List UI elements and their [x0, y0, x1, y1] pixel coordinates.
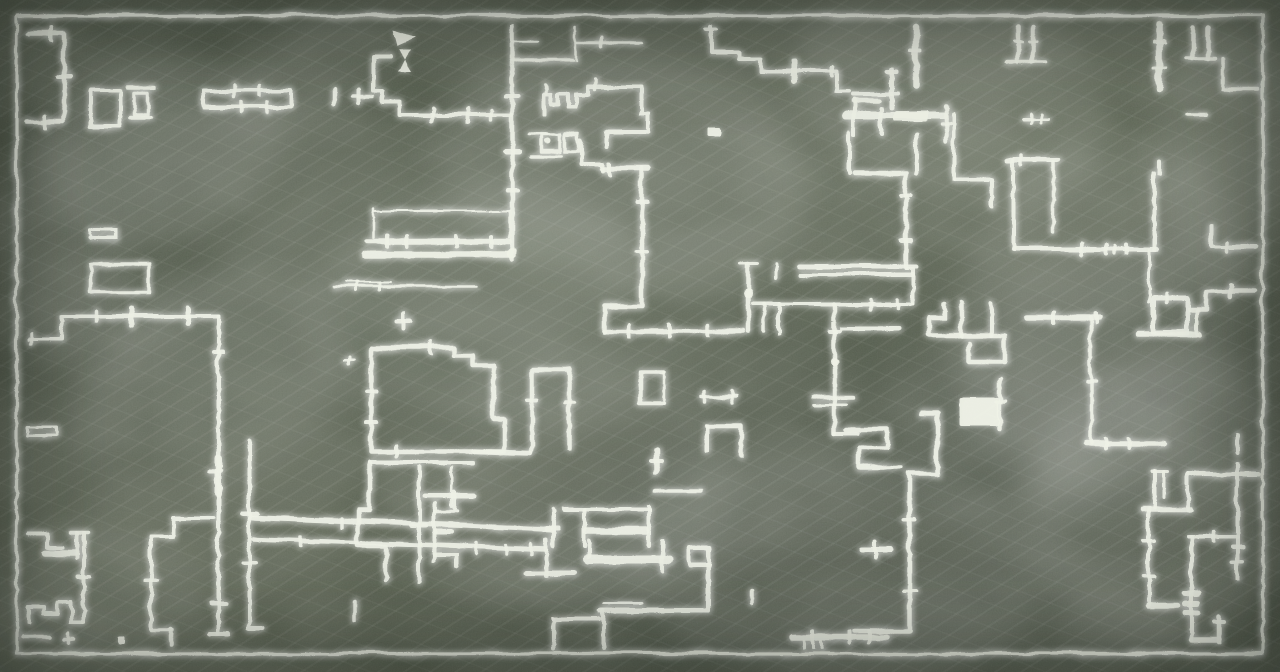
chalkboard: Green chalkboard with a hand-drawn white…	[0, 0, 1280, 672]
chalk-dust-overlay	[0, 0, 1280, 672]
blueprint-drawing	[0, 0, 1280, 672]
